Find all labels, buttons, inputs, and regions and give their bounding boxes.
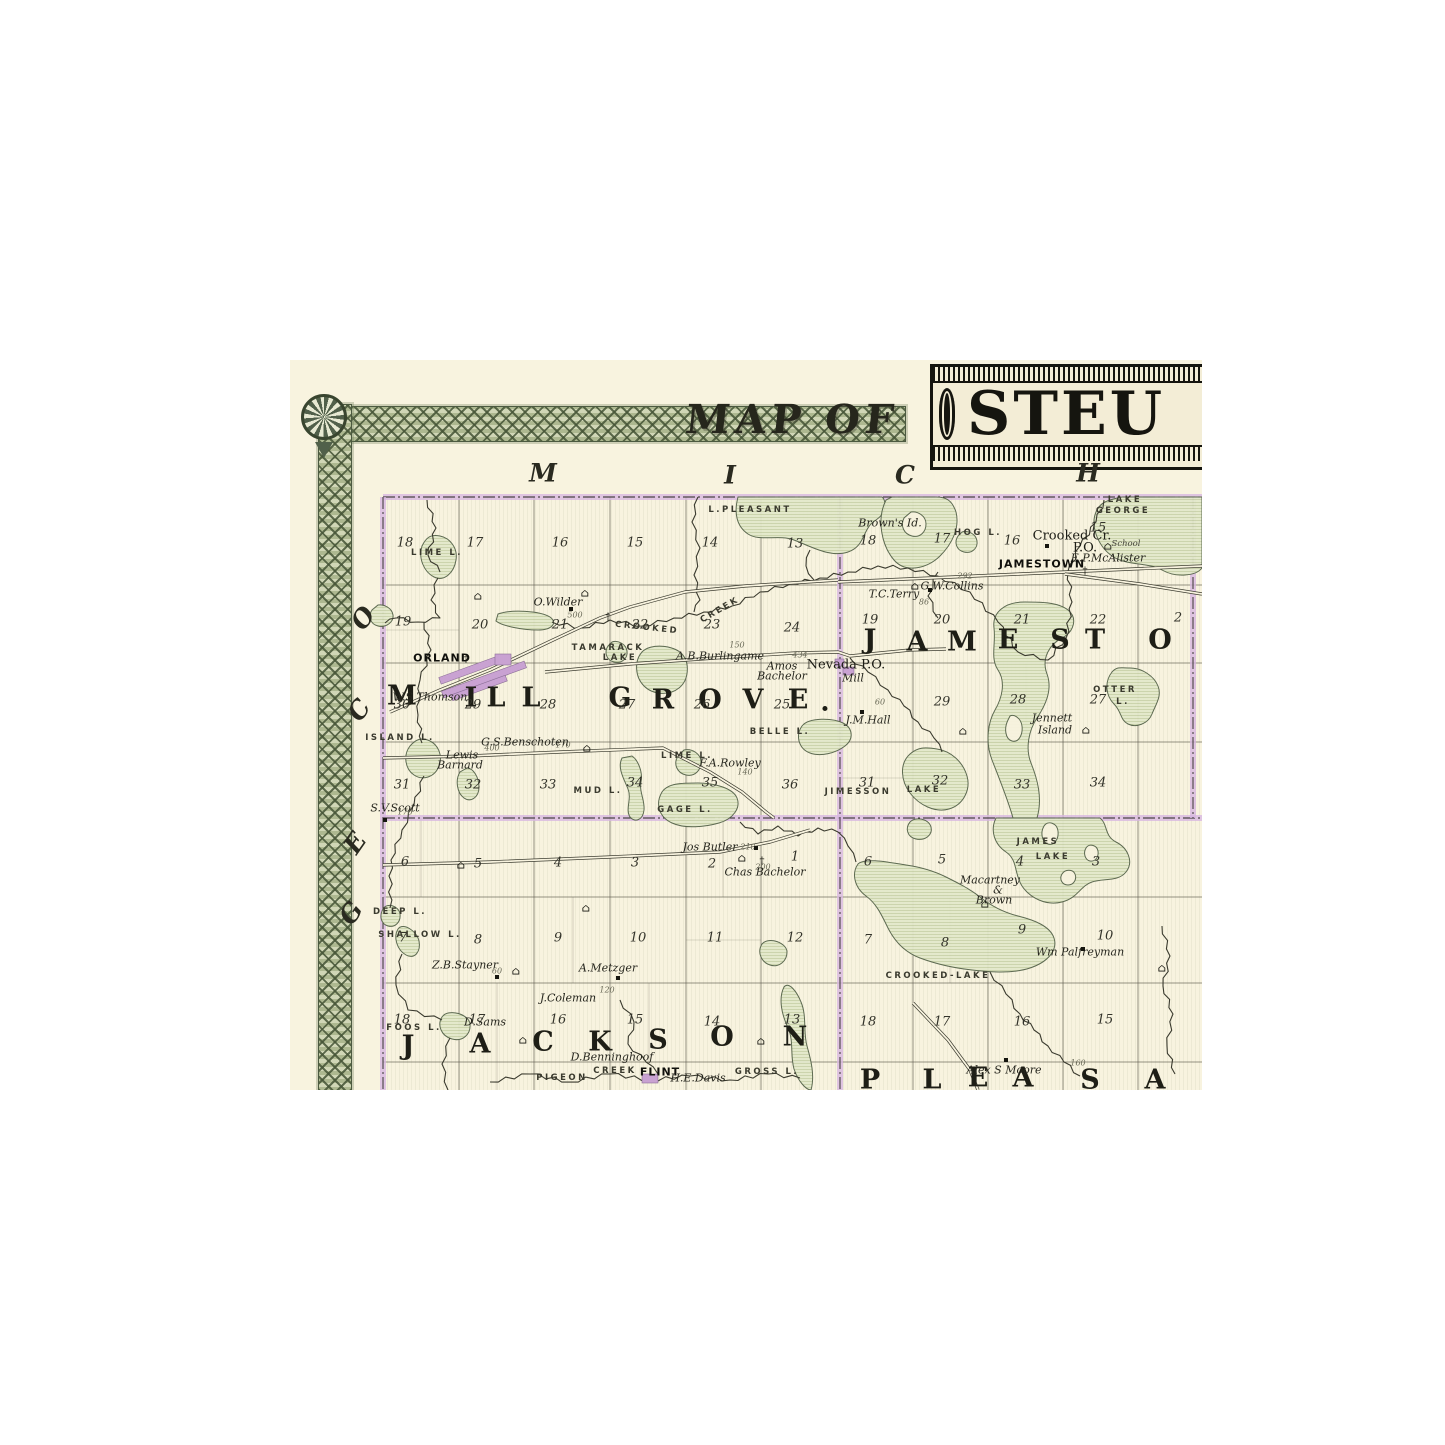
township-mill-grove: L bbox=[522, 683, 541, 714]
map-label-num: 16 bbox=[1014, 1015, 1031, 1030]
map-label-lake: L. bbox=[1116, 697, 1130, 707]
map-label-lake: CROOKED-LAKE bbox=[886, 971, 991, 981]
house-marker: ⌂ bbox=[582, 903, 590, 914]
map-label-num: 1 bbox=[791, 850, 799, 865]
map-label-num: 15 bbox=[627, 536, 644, 551]
township-mill-grove: L bbox=[487, 683, 506, 714]
map-label-num: 31 bbox=[394, 778, 411, 793]
creek-creek-east-edge bbox=[1162, 926, 1175, 1074]
map-label-lake: OTTER bbox=[1093, 685, 1137, 695]
map-label-num: 2 bbox=[1174, 611, 1182, 626]
map-label-num: 17 bbox=[467, 536, 484, 551]
banner-scroll-icon bbox=[939, 388, 955, 440]
map-label-num: 14 bbox=[704, 1015, 721, 1030]
residence-marker bbox=[1081, 947, 1085, 951]
map-label-lake: JAMES bbox=[1017, 837, 1060, 847]
map-label-po: Nevada P.O. bbox=[807, 658, 886, 673]
township-mill-grove: . bbox=[820, 687, 829, 718]
map-label-num: 20 bbox=[472, 618, 489, 633]
map-label-acre: 60 bbox=[875, 698, 885, 707]
map-label-num: 33 bbox=[1014, 778, 1031, 793]
map-label-owner: A.B.Burlingame bbox=[676, 650, 764, 663]
map-label-owner: Z.B.Stayner bbox=[432, 959, 498, 972]
house-marker: ⌂ bbox=[757, 1036, 765, 1047]
township-jamestown: M bbox=[947, 627, 977, 658]
lake-james-west-pond bbox=[907, 819, 931, 840]
map-label-lake: FOOS L. bbox=[386, 1023, 441, 1033]
map-label-owner: Island bbox=[1038, 724, 1072, 737]
map-label-lake: LAKE bbox=[907, 785, 941, 795]
house-marker: ⌂ bbox=[1104, 541, 1112, 552]
map-label-num: 19 bbox=[862, 613, 879, 628]
map-label-lake: GROSS L. bbox=[735, 1067, 799, 1077]
house-marker: ⌂ bbox=[581, 588, 589, 599]
map-label-num: 8 bbox=[474, 933, 482, 948]
lake-jennett-island-hole bbox=[1006, 715, 1022, 741]
township-mill-grove: E bbox=[788, 685, 809, 716]
map-label-lake: SHALLOW L. bbox=[378, 930, 462, 940]
church-marker: † bbox=[760, 857, 765, 867]
house-marker: ⌂ bbox=[474, 591, 482, 602]
house-marker: ⌂ bbox=[1158, 963, 1166, 974]
road-core bbox=[1065, 574, 1202, 594]
map-label-owner: D.Benninghoof bbox=[571, 1051, 654, 1064]
church-marker: † bbox=[464, 655, 469, 665]
house-marker: ⌂ bbox=[512, 966, 520, 977]
map-title: MAP OF bbox=[680, 396, 905, 443]
map-label-num: 16 bbox=[1004, 534, 1021, 549]
map-label-owner: O.Wilder bbox=[534, 596, 583, 609]
house-marker: ⌂ bbox=[457, 860, 465, 871]
map-label-num: 28 bbox=[540, 698, 557, 713]
map-label-num: 25 bbox=[774, 698, 791, 713]
map-label-owner: Wm Palfreyman bbox=[1036, 946, 1124, 959]
map-label-num: 15 bbox=[627, 1013, 644, 1028]
map-label-num: 2 bbox=[708, 857, 716, 872]
map-label-owner: S.V.Scott bbox=[370, 802, 419, 815]
map-label-num: 9 bbox=[554, 931, 562, 946]
map-label-acre: 150 bbox=[729, 641, 744, 650]
township-pleasant: L bbox=[923, 1065, 942, 1091]
map-label-num: 21 bbox=[1014, 613, 1031, 628]
map-label-num: 15 bbox=[1097, 1013, 1114, 1028]
map-label-owner: J.M.Hall bbox=[846, 714, 891, 727]
map-sheet: MAP OF STEU MICHOCEGMILLGROVE.JAMESTOJAC… bbox=[290, 360, 1202, 1090]
map-label-num: 19 bbox=[395, 615, 412, 630]
residence-marker bbox=[754, 846, 758, 850]
map-label-lake: PIGEON bbox=[536, 1073, 588, 1083]
residence-marker bbox=[860, 710, 864, 714]
map-label-num: 24 bbox=[784, 621, 801, 636]
creek-creek-pleasant-lk bbox=[806, 550, 814, 580]
corner-ornament bbox=[298, 394, 350, 458]
map-label-num: 4 bbox=[554, 856, 562, 871]
map-label-owner: Brown's Id. bbox=[858, 517, 922, 530]
map-label-num: 13 bbox=[787, 537, 804, 552]
border-letter-top: I bbox=[724, 461, 736, 490]
map-label-num: 27 bbox=[619, 698, 636, 713]
map-label-owner: Alex S Moore bbox=[967, 1064, 1042, 1077]
map-label-acre: 86 bbox=[919, 598, 929, 607]
map-label-lake: LIME L. bbox=[411, 548, 463, 558]
map-label-acre: 120 bbox=[599, 986, 614, 995]
map-label-num: 17 bbox=[934, 1015, 951, 1030]
map-label-num: 22 bbox=[1090, 613, 1107, 628]
corner-pendant-icon bbox=[315, 442, 333, 458]
map-label-owner: Chas Bachelor bbox=[725, 866, 806, 879]
map-label-lake: ISLAND L. bbox=[365, 733, 435, 743]
creek-creek-west-2 bbox=[389, 776, 424, 908]
map-label-lake: DEEP L. bbox=[373, 907, 427, 917]
township-jackson: J bbox=[402, 1031, 415, 1062]
township-mill-grove: R bbox=[652, 685, 674, 716]
township-jamestown: S bbox=[1050, 625, 1070, 656]
map-label-num: 32 bbox=[465, 778, 482, 793]
map-label-lake: GAGE L. bbox=[657, 805, 712, 815]
corner-rosette-icon bbox=[301, 394, 347, 440]
map-label-lake: MUD L. bbox=[573, 786, 622, 796]
map-label-num: 17 bbox=[934, 532, 951, 547]
house-marker: ⌂ bbox=[738, 853, 746, 864]
map-label-lake: LAKE bbox=[1036, 852, 1070, 862]
map-label-owner: D.Sams bbox=[464, 1016, 506, 1029]
lake-orland-swamp bbox=[496, 611, 554, 630]
map-label-acre: 500 bbox=[567, 611, 582, 620]
town-flint: FLINT bbox=[640, 1066, 680, 1079]
house-marker: ⌂ bbox=[911, 581, 919, 592]
township-jackson: A bbox=[470, 1029, 491, 1060]
map-label-lake: LAKE bbox=[1108, 495, 1142, 505]
creek-creek-west-4 bbox=[442, 1038, 450, 1090]
map-label-num: 10 bbox=[630, 931, 647, 946]
residence-marker bbox=[616, 976, 620, 980]
town-orland: ORLAND bbox=[413, 652, 471, 665]
county-banner: STEU bbox=[930, 364, 1202, 470]
map-label-lake: JIMESSON bbox=[825, 787, 892, 797]
map-label-owner: Barnard bbox=[437, 759, 483, 772]
residence-marker bbox=[1004, 1058, 1008, 1062]
creek-creek-sec15 bbox=[692, 497, 700, 612]
border-braid-left bbox=[318, 404, 352, 1090]
residence-marker bbox=[569, 607, 573, 611]
township-jackson: C bbox=[532, 1027, 554, 1058]
map-label-num: 13 bbox=[784, 1013, 801, 1028]
map-label-num: 3 bbox=[631, 856, 639, 871]
map-label-num: 12 bbox=[787, 931, 804, 946]
map-label-owner: Macartney bbox=[960, 874, 1020, 887]
house-marker: ⌂ bbox=[519, 1035, 527, 1046]
lake-james-island-3 bbox=[1061, 870, 1076, 885]
map-label-num: 18 bbox=[860, 1015, 877, 1030]
map-label-acre: 434 bbox=[792, 651, 807, 660]
map-label-num: 16 bbox=[552, 536, 569, 551]
church-marker: † bbox=[1083, 567, 1088, 577]
map-label-num: 5 bbox=[474, 857, 482, 872]
house-marker: ⌂ bbox=[583, 743, 591, 754]
creek-creek-west-1 bbox=[417, 622, 431, 743]
map-label-num: 28 bbox=[1010, 693, 1027, 708]
map-label-num: 11 bbox=[707, 931, 724, 946]
map-label-num: 34 bbox=[627, 776, 644, 791]
map-label-num: 36 bbox=[782, 778, 799, 793]
map-label-num: 21 bbox=[552, 618, 569, 633]
map-label-owner: W.S Thomson bbox=[393, 691, 468, 704]
township-jamestown: A bbox=[907, 627, 928, 658]
map-label-lake: HOG L. bbox=[954, 528, 1002, 538]
map-label-num: 5 bbox=[938, 853, 946, 868]
township-jamestown: E bbox=[998, 625, 1019, 656]
map-label-num: 20 bbox=[934, 613, 951, 628]
map-label-num: 3 bbox=[1092, 855, 1100, 870]
township-jamestown: O bbox=[1148, 625, 1172, 656]
map-label-num: 4 bbox=[1016, 855, 1024, 870]
map-label-num: 33 bbox=[540, 778, 557, 793]
map-label-acre: 160 bbox=[1070, 1059, 1085, 1068]
map-label-lake: LAKE bbox=[603, 653, 637, 663]
border-letter-top: M bbox=[529, 459, 557, 488]
border-letter-top: H bbox=[1076, 459, 1100, 488]
border-letter-top: C bbox=[895, 461, 915, 490]
house-marker: ⌂ bbox=[1082, 725, 1090, 736]
screenshot-canvas: MAP OF STEU MICHOCEGMILLGROVE.JAMESTOJAC… bbox=[0, 0, 1445, 1445]
house-marker: ⌂ bbox=[959, 726, 967, 737]
map-label-owner: J.Coleman bbox=[540, 992, 596, 1005]
map-label-lake: TAMARACK bbox=[572, 643, 645, 653]
residence-marker bbox=[1045, 544, 1049, 548]
map-label-lake: CREEK bbox=[593, 1066, 636, 1076]
map-label-num: 26 bbox=[694, 698, 711, 713]
map-label-owner: G.S.Benschoten bbox=[481, 736, 569, 749]
map-label-num: 35 bbox=[702, 776, 719, 791]
map-label-num: 6 bbox=[864, 855, 872, 870]
map-label-num: 16 bbox=[550, 1013, 567, 1028]
lake-sec12-pond bbox=[760, 940, 787, 965]
residence-marker bbox=[495, 975, 499, 979]
township-pleasant: P bbox=[860, 1065, 880, 1091]
map-label-owner: Bachelor bbox=[757, 670, 807, 683]
church-marker: † bbox=[606, 613, 611, 623]
map-label-num: 29 bbox=[934, 695, 951, 710]
map-label-num: 18 bbox=[860, 534, 877, 549]
residence-marker bbox=[928, 588, 932, 592]
map-label-lake: GEORGE bbox=[1096, 506, 1150, 516]
map-label-owner: Mill bbox=[842, 672, 864, 685]
town-jamestown: JAMESTOWN bbox=[999, 558, 1085, 571]
township-jamestown: T bbox=[1085, 625, 1105, 656]
map-label-po: P.O. bbox=[1073, 541, 1097, 556]
township-mill-grove: V bbox=[743, 685, 764, 716]
township-pleasant: A bbox=[1145, 1065, 1166, 1091]
map-label-num: 7 bbox=[864, 933, 872, 948]
map-label-lake: BELLE L. bbox=[750, 727, 811, 737]
map-label-num: 6 bbox=[401, 855, 409, 870]
map-label-num: 10 bbox=[1097, 929, 1114, 944]
map-label-num: 14 bbox=[702, 536, 719, 551]
township-jamestown: J bbox=[864, 625, 877, 656]
township-pleasant: S bbox=[1080, 1065, 1100, 1091]
lake-otter-lake bbox=[1107, 668, 1159, 726]
map-label-num: 8 bbox=[941, 936, 949, 951]
map-label-num: 34 bbox=[1090, 776, 1107, 791]
map-label-num: 9 bbox=[1018, 923, 1026, 938]
house-marker: ⌂ bbox=[981, 899, 989, 910]
county-name: STEU bbox=[955, 384, 1165, 444]
town-block bbox=[495, 654, 511, 665]
map-label-lake: LIME L. bbox=[661, 751, 713, 761]
residence-marker bbox=[383, 818, 387, 822]
map-label-owner: Jos Butler bbox=[682, 841, 737, 854]
map-label-lake: L.PLEASANT bbox=[708, 505, 791, 515]
map-label-owner: A.Metzger bbox=[579, 962, 637, 975]
map-label-tiny: School bbox=[1111, 539, 1140, 549]
